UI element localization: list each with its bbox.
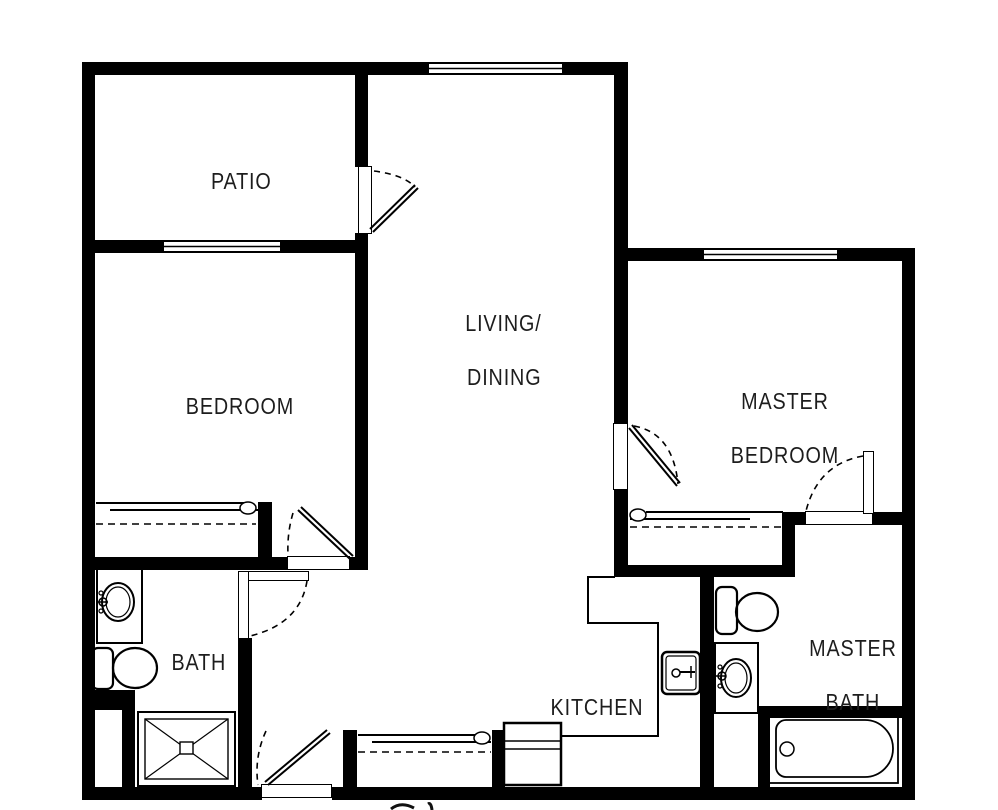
patio-door xyxy=(370,171,418,232)
room-label-master-bedroom: MASTER BEDROOM xyxy=(690,361,850,496)
shower-icon xyxy=(138,712,235,786)
kitchen-sink-icon xyxy=(662,652,700,694)
master-closet xyxy=(630,509,783,527)
floor-plan-canvas: PATIO LIVING/ DINING BEDROOM MASTER BEDR… xyxy=(0,0,998,810)
room-label-bath: BATH xyxy=(104,622,264,703)
room-label-living-dining: LIVING/ DINING xyxy=(409,283,569,418)
room-label-master-bath: MASTER BATH xyxy=(758,608,918,743)
cropped-text-fragment xyxy=(391,804,432,810)
bedroom-closet xyxy=(96,502,258,524)
room-label-bedroom: BEDROOM xyxy=(145,366,305,447)
master-bedroom-door xyxy=(629,425,680,486)
entry-door xyxy=(257,730,330,785)
master-vanity-icon xyxy=(714,643,758,713)
room-label-kitchen: KITCHEN xyxy=(502,667,662,748)
bedroom-door xyxy=(288,507,353,559)
entry-closet xyxy=(358,732,491,752)
room-label-patio: PATIO xyxy=(147,141,307,222)
